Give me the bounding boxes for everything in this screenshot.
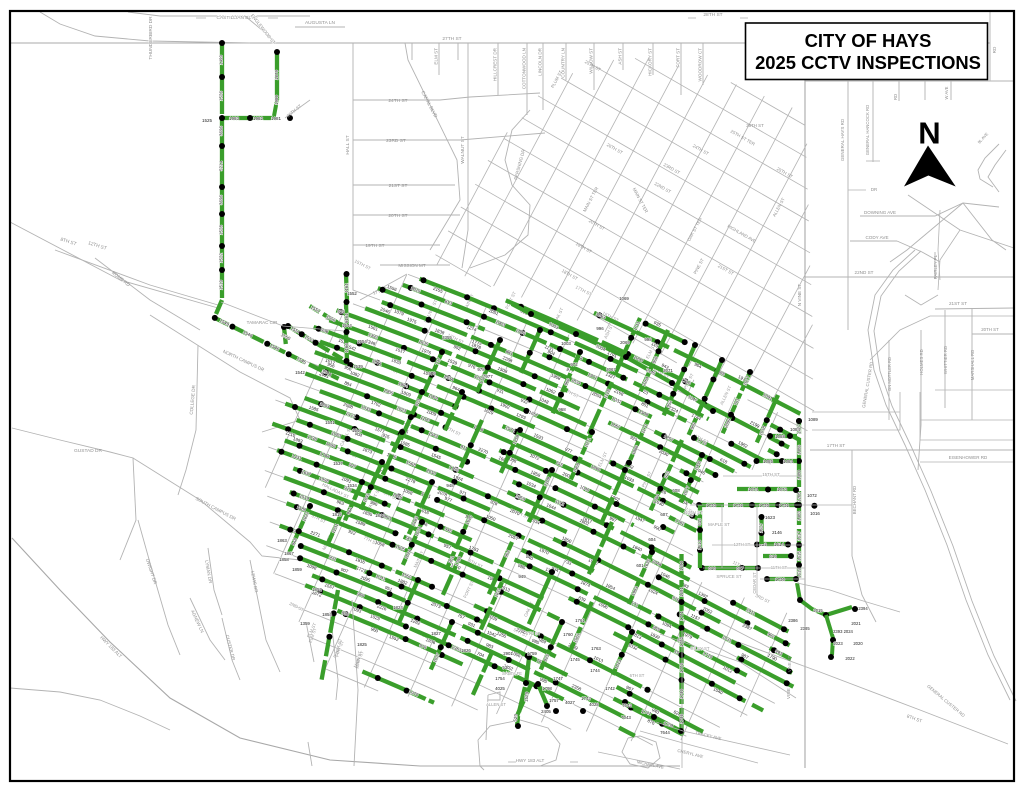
svg-text:1826: 1826: [461, 648, 471, 653]
svg-text:1691: 1691: [679, 586, 684, 597]
svg-text:1827: 1827: [431, 631, 441, 636]
svg-text:530: 530: [502, 665, 510, 670]
svg-text:1085: 1085: [763, 459, 774, 464]
svg-text:1205: 1205: [797, 491, 802, 502]
svg-text:1730: 1730: [775, 577, 786, 582]
svg-text:1773: 1773: [679, 662, 684, 673]
svg-text:1614: 1614: [774, 542, 785, 547]
svg-text:2025 CCTV INSPECTIONS: 2025 CCTV INSPECTIONS: [755, 52, 981, 73]
svg-text:1542: 1542: [295, 370, 305, 375]
svg-text:3696: 3696: [219, 194, 224, 205]
svg-text:2022: 2022: [845, 656, 855, 661]
svg-text:2015: 2015: [813, 608, 823, 613]
svg-text:1552: 1552: [347, 291, 357, 296]
svg-text:GENERAL HANCOCK RD: GENERAL HANCOCK RD: [865, 105, 870, 155]
svg-text:WOODROW CT: WOODROW CT: [698, 48, 703, 82]
svg-text:RD: RD: [893, 94, 898, 100]
svg-text:19TH ST: 19TH ST: [365, 243, 384, 249]
svg-text:1537: 1537: [333, 461, 343, 466]
svg-text:1879: 1879: [274, 69, 279, 80]
svg-text:1613: 1613: [697, 539, 702, 550]
svg-text:22ND ST: 22ND ST: [855, 270, 874, 275]
svg-text:VINE ST: VINE ST: [787, 655, 792, 672]
svg-text:THUNDERBIRD DR: THUNDERBIRD DR: [148, 16, 154, 60]
svg-text:7644: 7644: [660, 730, 670, 735]
svg-text:11TH ST: 11TH ST: [771, 565, 788, 570]
svg-text:1824: 1824: [393, 605, 403, 610]
svg-text:948: 948: [446, 483, 454, 488]
svg-text:W AVE: W AVE: [944, 86, 949, 99]
svg-text:1522: 1522: [219, 252, 224, 263]
svg-text:27TH ST: 27TH ST: [442, 36, 461, 42]
svg-text:WHITTIER RD: WHITTIER RD: [943, 346, 948, 374]
svg-text:2385: 2385: [800, 626, 810, 631]
svg-text:2146: 2146: [772, 530, 782, 535]
svg-text:GENERAL HAYS RD: GENERAL HAYS RD: [840, 118, 845, 161]
svg-text:1072: 1072: [807, 493, 817, 498]
svg-text:615: 615: [697, 518, 702, 526]
svg-text:1743: 1743: [581, 696, 591, 701]
svg-text:6TH ST: 6TH ST: [630, 673, 645, 678]
svg-text:2901: 2901: [503, 651, 513, 656]
svg-text:EISENHOWER RD: EISENHOWER RD: [949, 455, 988, 460]
svg-text:BECHANT RD: BECHANT RD: [852, 486, 857, 514]
svg-text:FORT ST: FORT ST: [676, 48, 681, 68]
svg-text:1528: 1528: [219, 224, 224, 235]
svg-text:608: 608: [672, 488, 680, 493]
svg-text:1541: 1541: [325, 420, 335, 425]
svg-text:2069: 2069: [620, 340, 630, 345]
svg-text:DR: DR: [871, 187, 877, 192]
svg-text:977: 977: [485, 374, 493, 379]
svg-text:CITY OF HAYS: CITY OF HAYS: [805, 30, 932, 51]
svg-text:HALL ST: HALL ST: [345, 135, 351, 154]
svg-text:MISSION MT: MISSION MT: [398, 263, 426, 268]
svg-text:SANTA FE: SANTA FE: [502, 671, 522, 676]
svg-text:1615: 1615: [797, 550, 802, 561]
svg-text:HICKORY ST: HICKORY ST: [648, 48, 653, 76]
svg-text:5TH ST: 5TH ST: [526, 631, 541, 636]
svg-text:RD: RD: [992, 46, 997, 53]
svg-text:MAPLE ST: MAPLE ST: [708, 522, 730, 527]
svg-text:1088: 1088: [775, 434, 786, 439]
svg-text:21ST ST: 21ST ST: [389, 183, 408, 189]
svg-text:1858: 1858: [279, 557, 289, 562]
svg-text:968: 968: [558, 407, 566, 412]
svg-text:1554: 1554: [357, 339, 367, 344]
svg-text:1627: 1627: [759, 522, 764, 533]
svg-text:1534: 1534: [347, 483, 357, 488]
svg-text:2393 2024: 2393 2024: [833, 629, 853, 634]
svg-text:4028: 4028: [589, 702, 599, 707]
svg-text:ELM ST: ELM ST: [434, 48, 439, 65]
svg-text:28TH ST: 28TH ST: [703, 12, 722, 18]
svg-text:1736: 1736: [679, 713, 684, 724]
svg-text:20TH ST: 20TH ST: [388, 213, 407, 219]
svg-text:2021: 2021: [851, 621, 861, 626]
svg-text:1863: 1863: [277, 538, 287, 543]
svg-text:AUGUSTA LN: AUGUSTA LN: [305, 20, 336, 26]
svg-text:5214: 5214: [219, 160, 224, 171]
svg-text:604: 604: [648, 537, 656, 542]
svg-text:HOLMES RD: HOLMES RD: [919, 349, 924, 375]
svg-text:23RD ST: 23RD ST: [386, 138, 406, 144]
svg-text:1690: 1690: [679, 560, 684, 571]
svg-text:1073: 1073: [777, 487, 788, 492]
svg-text:1798: 1798: [542, 686, 552, 691]
svg-text:7043: 7043: [621, 715, 631, 720]
svg-text:1825: 1825: [357, 642, 367, 647]
svg-text:2023: 2023: [833, 641, 843, 646]
svg-text:1084: 1084: [790, 427, 801, 432]
svg-text:2020: 2020: [853, 641, 863, 646]
svg-text:607: 607: [660, 512, 668, 517]
svg-text:1744: 1744: [590, 668, 600, 673]
svg-text:1813: 1813: [375, 513, 385, 518]
svg-text:998: 998: [644, 337, 652, 342]
svg-text:1539: 1539: [353, 364, 363, 369]
svg-text:1742: 1742: [605, 686, 615, 691]
svg-text:1731: 1731: [779, 503, 790, 508]
svg-text:7643: 7643: [622, 703, 632, 708]
svg-text:1499: 1499: [219, 54, 224, 65]
svg-text:DOWNING AVE: DOWNING AVE: [864, 210, 896, 215]
svg-text:2386: 2386: [788, 618, 798, 623]
svg-text:20TH ST: 20TH ST: [981, 327, 999, 332]
svg-text:1867: 1867: [284, 551, 294, 556]
svg-text:1003: 1003: [561, 341, 571, 346]
svg-text:SPRUCE ST: SPRUCE ST: [716, 574, 741, 579]
svg-text:619: 619: [769, 554, 777, 559]
svg-text:979: 979: [428, 371, 436, 376]
svg-text:1069: 1069: [619, 296, 629, 301]
svg-text:ASH ST: ASH ST: [618, 48, 623, 65]
svg-text:2355: 2355: [442, 335, 452, 340]
svg-text:HWY 183 ALT: HWY 183 ALT: [516, 758, 545, 763]
svg-text:21ST ST: 21ST ST: [949, 301, 967, 306]
svg-text:15TH ST: 15TH ST: [762, 472, 780, 477]
svg-text:972: 972: [570, 362, 578, 367]
svg-text:RILEY ST: RILEY ST: [690, 646, 709, 651]
svg-text:1854: 1854: [322, 612, 332, 617]
svg-text:4025: 4025: [495, 686, 505, 691]
svg-text:3696: 3696: [219, 125, 224, 136]
svg-text:2071: 2071: [663, 368, 673, 373]
svg-text:2067: 2067: [606, 367, 616, 372]
svg-text:FAIRLEY PL: FAIRLEY PL: [933, 254, 938, 279]
svg-text:N: N: [918, 116, 940, 151]
svg-text:1016: 1016: [810, 511, 820, 516]
svg-text:1519: 1519: [219, 279, 224, 290]
svg-text:GN MOTTLER RD: GN MOTTLER RD: [887, 357, 892, 391]
svg-text:1754: 1754: [495, 676, 505, 681]
svg-text:1745: 1745: [570, 657, 580, 662]
svg-text:978: 978: [477, 367, 485, 372]
svg-text:N VINE ST: N VINE ST: [797, 284, 802, 307]
svg-text:1735: 1735: [759, 503, 770, 508]
svg-text:1084: 1084: [783, 459, 794, 464]
svg-text:MARSHALL RD: MARSHALL RD: [970, 350, 975, 380]
svg-text:1086: 1086: [797, 444, 802, 455]
svg-text:1771: 1771: [679, 610, 684, 621]
svg-text:LINCOLN DR: LINCOLN DR: [538, 47, 543, 76]
svg-text:1359: 1359: [300, 621, 310, 626]
svg-text:925: 925: [337, 309, 345, 314]
svg-text:1759: 1759: [527, 651, 537, 656]
svg-text:1080: 1080: [797, 469, 802, 480]
svg-text:1083: 1083: [797, 510, 802, 521]
svg-text:12TH ST: 12TH ST: [734, 542, 751, 547]
svg-text:1757: 1757: [549, 698, 559, 703]
svg-text:1732: 1732: [733, 503, 744, 508]
svg-text:1529: 1529: [524, 691, 530, 702]
svg-text:949: 949: [518, 574, 526, 579]
svg-text:1166: 1166: [344, 343, 349, 353]
svg-text:1763: 1763: [591, 646, 601, 651]
svg-text:HILLCREST DR: HILLCREST DR: [493, 47, 498, 81]
svg-text:COTTONWOOD LN: COTTONWOOD LN: [522, 48, 527, 89]
svg-text:1526: 1526: [219, 90, 224, 101]
svg-text:1761: 1761: [575, 618, 585, 623]
svg-text:1747: 1747: [553, 676, 563, 681]
svg-text:1859: 1859: [292, 567, 302, 572]
svg-text:26TH ST: 26TH ST: [746, 123, 764, 128]
svg-text:1544: 1544: [342, 323, 352, 328]
svg-text:1981: 1981: [271, 116, 282, 121]
svg-text:1525: 1525: [202, 118, 213, 123]
svg-text:618: 618: [708, 566, 716, 571]
svg-text:1980: 1980: [274, 94, 279, 105]
svg-text:CEDAR ST: CEDAR ST: [752, 572, 757, 594]
svg-text:1815: 1815: [332, 512, 342, 517]
svg-text:1540: 1540: [352, 428, 362, 433]
svg-text:1617: 1617: [797, 530, 802, 541]
svg-text:2405: 2405: [541, 709, 551, 714]
svg-text:617: 617: [736, 566, 744, 571]
svg-text:1983: 1983: [229, 116, 240, 121]
svg-text:529: 529: [513, 713, 519, 721]
svg-text:17TH ST: 17TH ST: [827, 443, 846, 448]
svg-text:1852: 1852: [312, 587, 322, 592]
svg-text:601: 601: [636, 563, 644, 568]
svg-text:2394: 2394: [858, 606, 868, 611]
svg-text:1733: 1733: [706, 503, 717, 508]
svg-text:13TH ST: 13TH ST: [685, 510, 703, 515]
svg-text:1623: 1623: [765, 515, 776, 520]
svg-text:1730: 1730: [679, 688, 684, 699]
svg-text:1074: 1074: [748, 487, 759, 492]
svg-text:1760: 1760: [563, 632, 573, 637]
svg-text:GUSTAD DR: GUSTAD DR: [74, 448, 102, 454]
svg-text:CODY AVE: CODY AVE: [865, 235, 888, 240]
svg-text:24TH ST: 24TH ST: [388, 98, 407, 104]
svg-text:ALLEN ST: ALLEN ST: [486, 702, 506, 707]
svg-text:1982: 1982: [253, 116, 264, 121]
svg-text:4027: 4027: [565, 700, 575, 705]
svg-text:1089: 1089: [808, 417, 818, 422]
svg-text:996: 996: [596, 326, 604, 331]
